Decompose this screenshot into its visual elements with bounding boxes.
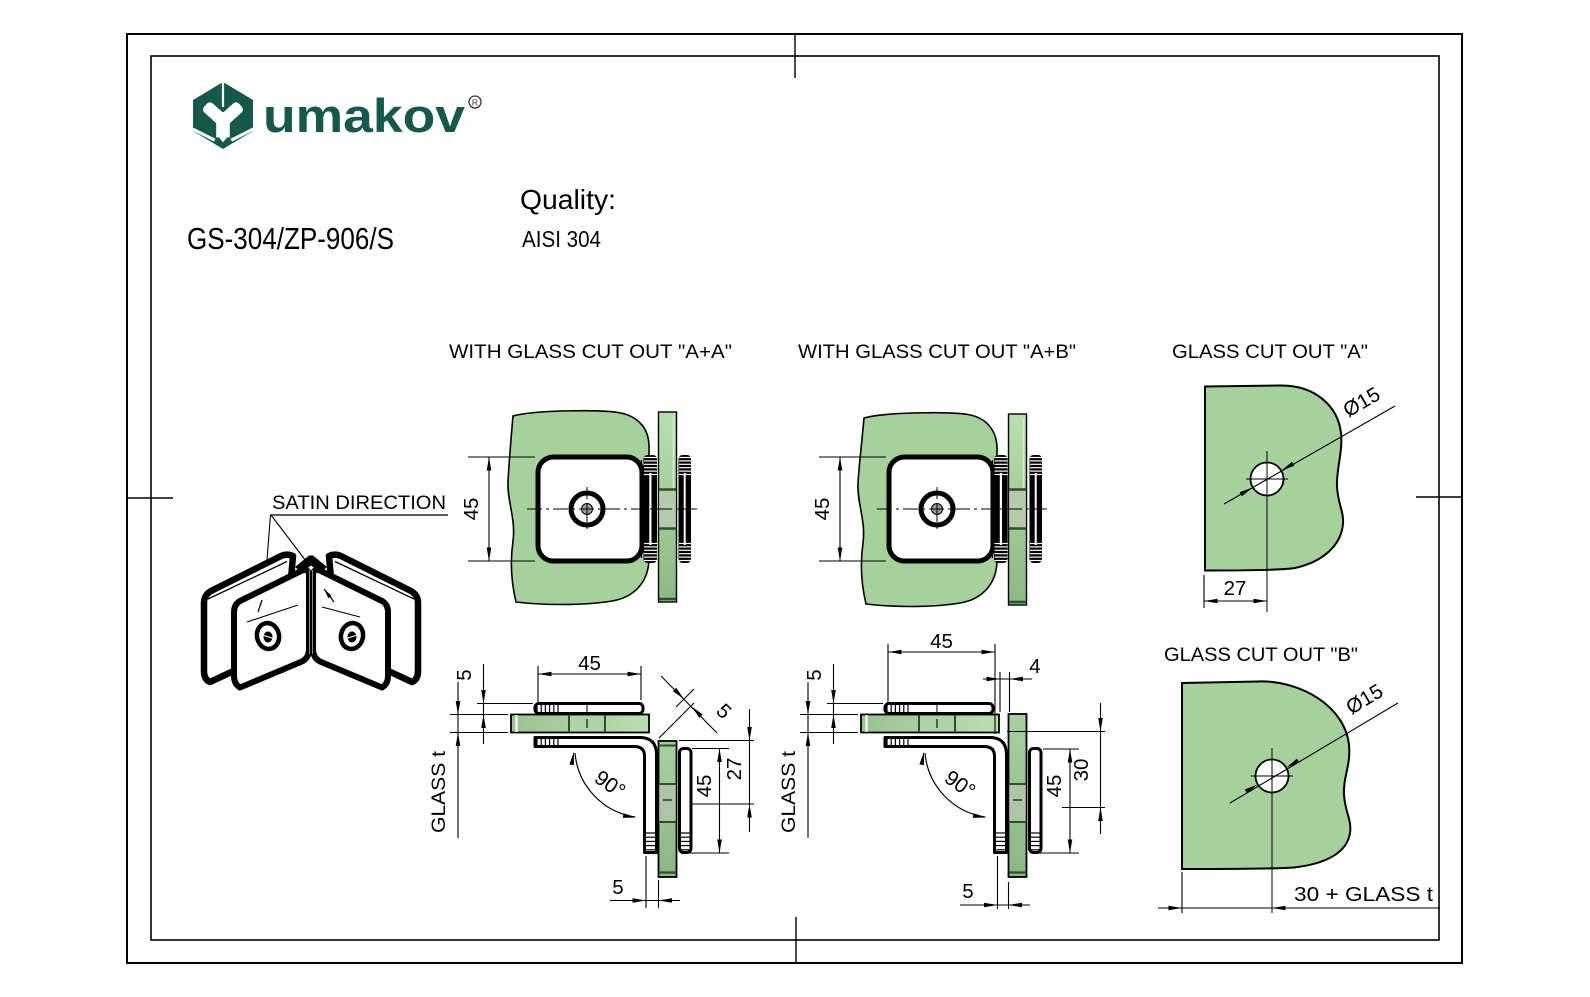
svg-text:GLASS CUT OUT "B": GLASS CUT OUT "B" bbox=[1164, 644, 1358, 666]
svg-text:27: 27 bbox=[723, 758, 746, 781]
svg-text:SATIN DIRECTION: SATIN DIRECTION bbox=[272, 492, 446, 514]
svg-text:45: 45 bbox=[930, 630, 953, 653]
svg-text:45: 45 bbox=[1043, 775, 1066, 798]
svg-text:GLASS t: GLASS t bbox=[428, 750, 450, 833]
svg-text:Quality:: Quality: bbox=[520, 184, 616, 215]
svg-text:30: 30 bbox=[1070, 759, 1093, 782]
svg-text:umakov: umakov bbox=[263, 89, 465, 142]
svg-text:GLASS t: GLASS t bbox=[778, 750, 800, 833]
svg-text:27: 27 bbox=[1224, 577, 1247, 600]
svg-text:GS-304/ZP-906/S: GS-304/ZP-906/S bbox=[187, 221, 394, 256]
svg-text:5: 5 bbox=[453, 669, 476, 680]
svg-text:5: 5 bbox=[803, 669, 826, 680]
svg-text:30 + GLASS t: 30 + GLASS t bbox=[1294, 883, 1433, 906]
svg-text:5: 5 bbox=[962, 880, 973, 903]
svg-text:AISI 304: AISI 304 bbox=[522, 226, 601, 252]
svg-text:GLASS CUT OUT "A": GLASS CUT OUT "A" bbox=[1172, 341, 1368, 363]
svg-text:WITH GLASS CUT OUT "A+A": WITH GLASS CUT OUT "A+A" bbox=[449, 341, 732, 363]
svg-text:5: 5 bbox=[612, 876, 623, 899]
svg-text:R: R bbox=[472, 98, 478, 108]
svg-text:WITH GLASS CUT OUT "A+B": WITH GLASS CUT OUT "A+B" bbox=[798, 341, 1076, 363]
svg-text:4: 4 bbox=[1029, 655, 1040, 678]
svg-text:45: 45 bbox=[578, 652, 601, 675]
svg-text:45: 45 bbox=[693, 775, 716, 798]
svg-text:45: 45 bbox=[460, 498, 483, 521]
svg-text:45: 45 bbox=[811, 498, 834, 521]
